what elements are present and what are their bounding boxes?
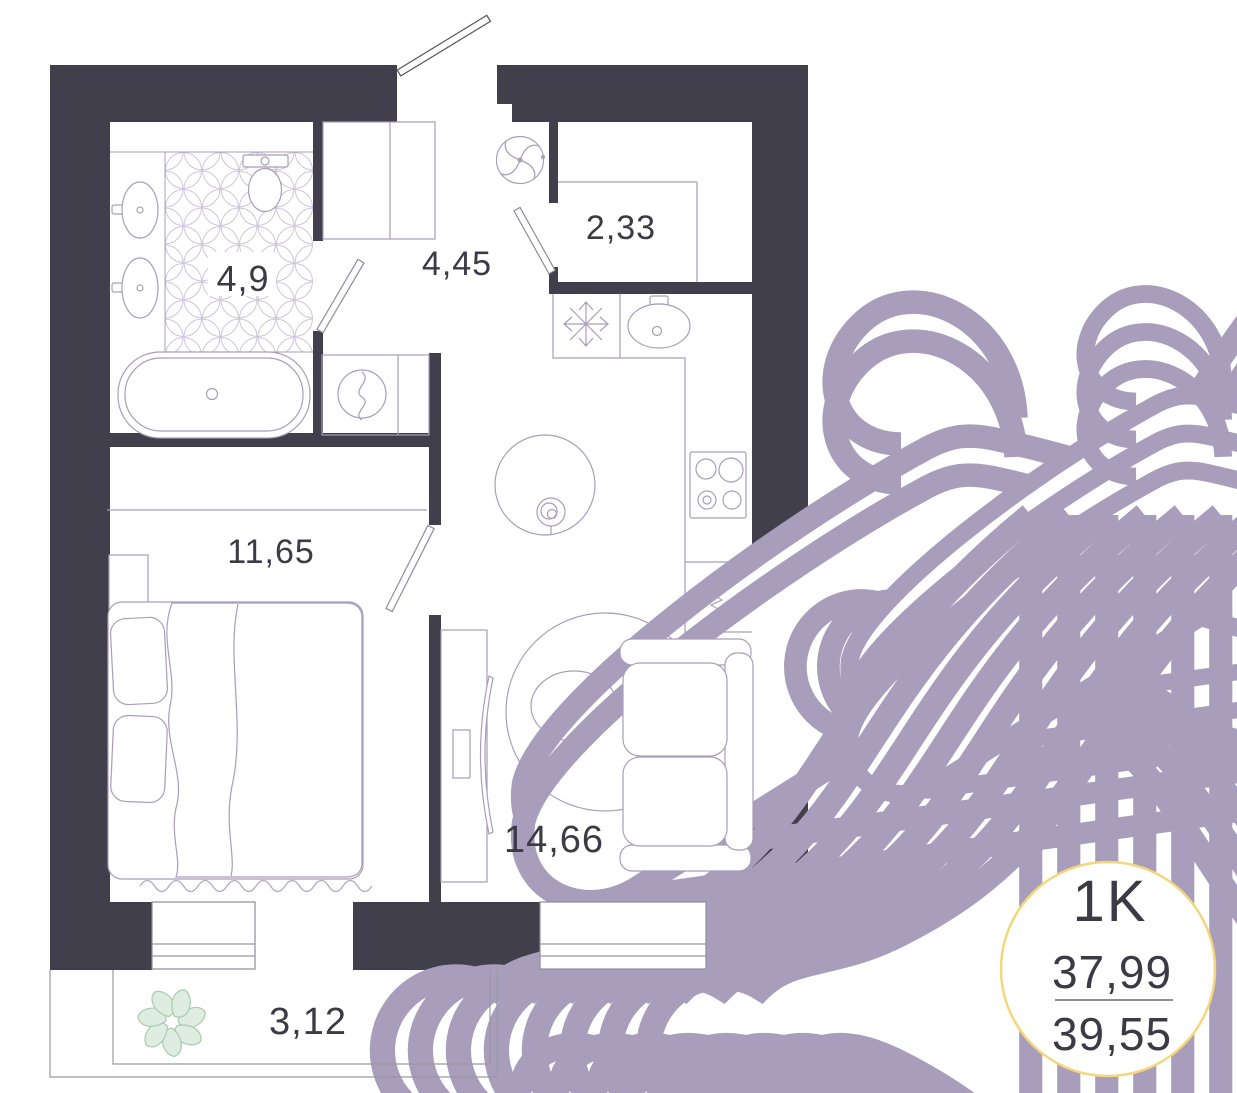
blanket-fringe: [140, 881, 372, 892]
plant-icon: [136, 987, 205, 1058]
fridge-snowflake-icon: [564, 302, 608, 346]
tv-bracket: [453, 730, 470, 778]
hallway-area-label: 4,45: [422, 245, 492, 283]
kitchen-sink-icon: [628, 296, 690, 348]
bathroom-area-label: 4,9: [216, 258, 269, 299]
sofa-seat: [623, 663, 727, 756]
stove-icon: [690, 452, 746, 518]
wall-closet-stub: [549, 122, 558, 203]
badge-plan-type: 1K: [1073, 869, 1148, 934]
living-area-label: 14,66: [504, 819, 604, 861]
floor-plan: 4,9 4,45: [0, 0, 1237, 1093]
wall-bottom-middle: [353, 902, 540, 970]
badge-area-lower: 39,55: [1052, 1008, 1172, 1060]
wall-bedroom-stub: [429, 447, 441, 525]
badge-area-upper: 37,99: [1052, 946, 1172, 998]
sofa-back: [725, 653, 753, 850]
balcony-area-label: 3,12: [269, 1001, 347, 1043]
wall-bedroom-living: [429, 615, 441, 902]
sofa: [620, 639, 753, 871]
bathtub-icon: [118, 352, 310, 438]
closet-door: [514, 207, 555, 273]
blanket: [167, 603, 362, 877]
bed: [108, 602, 372, 892]
sink-icon: [112, 182, 158, 238]
wall-bottom-left: [110, 902, 152, 970]
fan-icon: [497, 137, 546, 184]
bathroom-door: [317, 259, 364, 332]
pillow: [110, 617, 168, 706]
wall-bathroom-upper: [313, 122, 323, 241]
bedroom-window: [152, 902, 255, 969]
entry-jamb-notch: [497, 104, 512, 122]
wall-closet-bottom: [549, 282, 752, 294]
closet-area-label: 2,33: [586, 209, 656, 247]
wall-top-left: [50, 65, 397, 122]
plan-badge: 1K 37,99 39,55: [1001, 862, 1215, 1076]
entrance-door: [397, 15, 490, 76]
bedroom-area-label: 11,65: [227, 533, 315, 571]
hallway: 4,45: [397, 15, 545, 283]
washing-machine-icon: [322, 355, 429, 435]
tv-stand: [441, 630, 493, 882]
sink-icon: [112, 258, 158, 318]
dining-table: [489, 382, 637, 579]
sofa-seat: [623, 757, 727, 846]
floor-plan-page: 4,9 4,45: [0, 0, 1237, 1093]
wall-niche-right: [429, 353, 441, 433]
bedroom-door: [386, 525, 434, 611]
pillow: [110, 715, 168, 803]
wall-left: [50, 65, 110, 970]
living-window: [540, 902, 706, 969]
